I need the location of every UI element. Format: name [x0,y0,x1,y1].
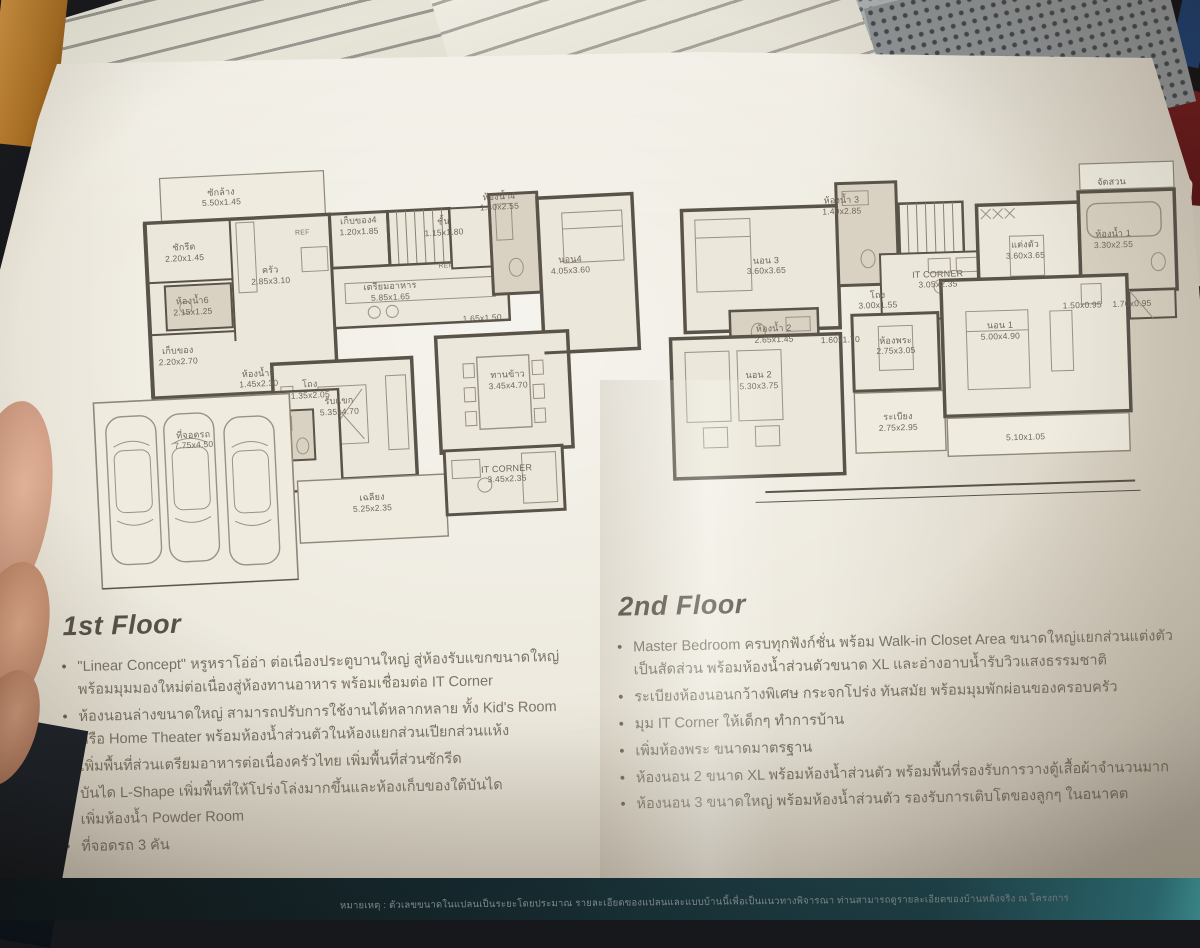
room-label: เก็บของ2.20x2.70 [158,344,198,367]
room-label: ห้องพระ2.75x3.05 [876,334,916,356]
feature-bullet: •"Linear Concept" หรูหราโอ่อ่า ต่อเนื่อง… [61,646,562,702]
room-label: นอน 25.30x3.75 [739,369,779,391]
room-label: IT CORNER3.05x2.35 [912,268,964,291]
room-label: ซักล้าง5.50x1.45 [201,186,241,209]
room-label: ห้องน้ำ 22.65x1.45 [754,323,794,345]
room-label: 5.10x1.05 [1006,431,1045,442]
section-1st-floor: 1st Floor •"Linear Concept" หรูหราโอ่อ่า… [60,601,565,864]
room-label: 1.70x0.95 [1112,298,1151,309]
room-label: นอน 15.00x4.90 [980,320,1020,342]
room-label: รับแขก5.35x4.70 [319,394,359,417]
disclaimer-text: หมายเหตุ : ตัวเลขขนาดในแปลนเป็นระยะโดยปร… [340,889,1200,913]
room-label: ครัว2.85x3.10 [250,264,290,287]
room-label: จัดสวน [1097,176,1126,188]
feature-bullet: •Master Bedroom ครบทุกฟังก์ชั่น พร้อม Wa… [617,625,1193,683]
room-label: ที่จอดรถ7.75x4.50 [173,428,213,451]
room-label: แต่งตัว3.60x3.65 [1005,239,1045,261]
room-label: 1.65x1.50 [462,312,502,324]
room-label: เก็บของ41.20x1.85 [339,215,379,238]
section-2nd-floor: 2nd Floor •Master Bedroom ครบทุกฟังก์ชั่… [616,580,1196,821]
floorplan-2nd-floor: นอน 33.60x3.65ห้องน้ำ 31.40x2.85จัดสวนแต… [625,157,1189,556]
feature-list-2nd-floor: •Master Bedroom ครบทุกฟังก์ชั่น พร้อม Wa… [617,625,1196,817]
room-label: ห้องน้ำ 31.40x2.85 [822,195,862,217]
room-label: เฉลียง5.25x2.35 [352,491,392,514]
heading-2nd-floor: 2nd Floor [618,580,1192,623]
room-label: ห้องน้ำ62.15x1.25 [173,294,213,317]
feature-bullet: •ที่จอดรถ 3 คัน [65,826,565,859]
room-label: นอน 33.60x3.65 [746,254,786,276]
room-label: ห้องน้ำ51.45x2.30 [238,367,278,390]
room-label: โถง3.00x1.55 [858,289,898,311]
feature-list-1st-floor: •"Linear Concept" หรูหราโอ่อ่า ต่อเนื่อง… [61,646,565,860]
room-label: เตรียมอาหาร5.85x1.65 [363,280,417,304]
room-label: ซักรีด2.20x1.45 [164,241,204,264]
room-label: 1.50x0.95 [1063,299,1102,310]
footer-strip: หมายเหตุ : ตัวเลขขนาดในแปลนเป็นระยะโดยปร… [0,878,1200,920]
room-label: REF [295,229,310,238]
brochure-page: ซักล้าง5.50x1.45ซักรีด2.20x1.45ครัว2.85x… [0,0,1200,920]
room-label: ชั้น1.15x1.80 [424,215,464,238]
floorplan-1st-floor: ซักล้าง5.50x1.45ซักรีด2.20x1.45ครัว2.85x… [67,141,654,614]
feature-bullet: •ห้องนอนล่างขนาดใหญ่ สามารถปรับการใช้งาน… [62,696,563,752]
room-label: นอน44.05x3.60 [550,254,590,277]
room-label: ห้องน้ำ 13.30x2.55 [1093,228,1133,250]
room-label: ทานข้าว3.45x4.70 [488,368,528,391]
room-label: REF [438,262,453,271]
room-label: IT CORNER3.45x2.35 [481,462,533,485]
room-label: ห้องน้ำ41.40x2.55 [479,190,519,213]
room-label: 1.60x1.70 [821,334,860,345]
room-label: ระเบียง2.75x2.95 [878,411,918,433]
